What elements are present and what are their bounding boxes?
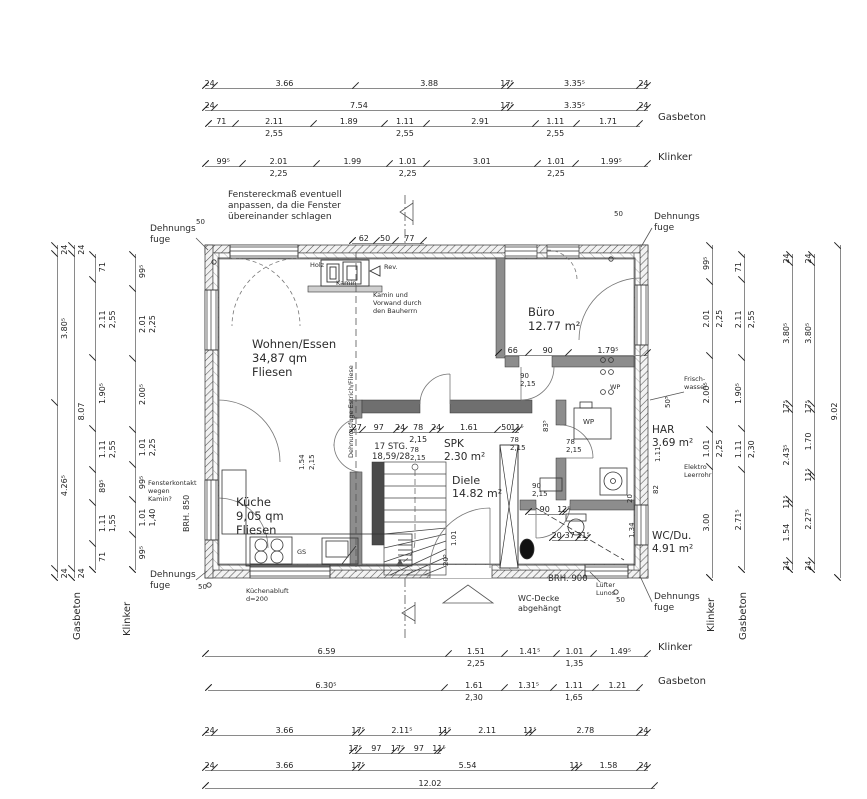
dim-col-right-gasbeton: 712.112,551.90⁵1.112,302.71⁵ (744, 254, 745, 570)
dim-value: 1.58 (600, 761, 618, 770)
room-spk: SPK2.30 m² (444, 438, 485, 463)
floor-plan-page: { "materials": {"gasbeton": "Gasbeton", … (0, 0, 867, 799)
dim-v111: 1.11 (654, 446, 662, 462)
material-bottom-gasbeton: Gasbeton (658, 676, 706, 688)
dim-subvalue: 2,55 (108, 310, 117, 328)
dim-col-left-2: 248.0724 (74, 245, 75, 578)
dim-value: 1.11 (396, 117, 414, 126)
dim-value: 1.70 (804, 433, 813, 451)
dim-row-top-1: 243.663.8817⁵3.35⁵24 (205, 88, 648, 89)
note-frischwasser: Frisch- wasser (684, 376, 707, 392)
dim-row-bottom-3: 243.6617⁵2.11⁵11⁵2.1111⁵2.7824 (205, 735, 648, 736)
dim-subvalue: 2,30 (747, 440, 756, 458)
dim-value: 3.88 (420, 79, 438, 88)
dim-value: 24 (638, 726, 648, 735)
note-fensterkontakt: Fensterkontakt wegen Kamin? (148, 480, 197, 503)
door-spk (420, 374, 450, 404)
dim-v101: 1.01 (450, 530, 458, 546)
material-bottom-klinker: Klinker (658, 642, 692, 654)
section-marker-top (400, 200, 413, 225)
dim-value: 3.80⁵ (782, 323, 791, 344)
label-brh900: BRH. 900 (548, 574, 588, 584)
dim-double-door-width: 1.54 (298, 454, 306, 470)
dim-value: 6.30⁵ (315, 681, 336, 690)
dim-value: 2.01 (270, 157, 288, 166)
room-har: HAR3.69 m² (652, 424, 693, 449)
dim-value: 3.35⁵ (564, 101, 585, 110)
dim-value: 1.90⁵ (98, 383, 107, 404)
dim-door-har-2: 78 2,15 (566, 438, 582, 455)
dim-value: 1.90⁵ (734, 383, 743, 404)
door-entry (430, 508, 490, 568)
dim-value: 77 (404, 234, 414, 243)
note-luefter: Lüfter Lunos (596, 582, 615, 598)
dim-value: 2.78 (576, 726, 594, 735)
dim-value: 3.01 (473, 157, 491, 166)
dim-value: 3.66 (276, 761, 294, 770)
dim-value: 11⁵ (432, 744, 445, 753)
dim-value: 2.27⁵ (804, 509, 813, 530)
dim-value: 1.99⁵ (601, 157, 622, 166)
dim-value: 97 (414, 744, 424, 753)
dim-value: 1.01 (566, 647, 584, 656)
dim-col-right-4: 243.80⁵17⁵1.7011⁵2.27⁵24 (814, 254, 815, 570)
dim-value: 3.66 (276, 726, 294, 735)
dehnungsfuge-bottom-right: Dehnungs fuge (654, 592, 700, 614)
dim-value: 1.51 (467, 647, 485, 656)
dim-value: 1.49⁵ (610, 647, 631, 656)
dim-subvalue: 2,25 (148, 438, 157, 456)
dim-value: 7.54 (350, 101, 368, 110)
window-swing-1 (232, 258, 300, 326)
dim-value: 71 (98, 262, 107, 272)
dim-row-buero: 66901.79⁵ (498, 355, 648, 356)
dim-col-right-3: 243.80⁵17⁵2.43⁵11⁵1.5424 (792, 254, 793, 570)
dehnungsfuge-top-right: Dehnungs fuge (654, 212, 700, 234)
dim-value: 12.02 (419, 779, 442, 788)
dim-subvalue: 2,55 (396, 129, 414, 138)
dim-value: 1.79⁵ (597, 346, 618, 355)
dim-row-stair-hall: 279724782,15241.615011⁵ (352, 432, 519, 433)
dim-value: 2.11⁵ (391, 726, 412, 735)
dim-value: 1.01 (702, 440, 711, 458)
dim-value: 21⁵ (576, 531, 589, 540)
dim-value: 2.11 (734, 310, 743, 328)
dim-value: 24 (77, 245, 86, 255)
dim-value: 90 (540, 505, 550, 514)
label-kamin: Kamin (336, 280, 356, 288)
dim-value: 1.21 (608, 681, 626, 690)
staircase (384, 462, 446, 575)
dim-col-left-klinker: 99⁵2.012,252.00⁵1.012,2599⁵1.011,4099⁵ (135, 254, 136, 570)
dim-value: 4.26⁵ (60, 475, 69, 496)
dim-row-shower: 203721⁵ (552, 540, 588, 541)
dim-subvalue: 2,15 (409, 435, 427, 444)
dim-value: 2.91 (471, 117, 489, 126)
fuge-dim-tl: 50 (196, 218, 205, 226)
room-buero: Büro12.77 m² (528, 306, 580, 334)
dim-subvalue: 2,25 (715, 440, 724, 458)
dim-value: 66 (508, 346, 518, 355)
note-wcdecke: WC-Decke abgehängt (518, 594, 561, 613)
dim-value: 1.31⁵ (518, 681, 539, 690)
dim-row-top-2: 247.5417⁵3.35⁵24 (205, 110, 648, 111)
section-marker-bottom (402, 602, 415, 624)
material-left-gasbeton: Gasbeton (72, 592, 83, 640)
dim-value: 24 (638, 101, 648, 110)
dim-value: 3.80⁵ (804, 323, 813, 344)
dim-value: 2.01 (702, 310, 711, 328)
dim-row-wc-door: 9012⁵ (528, 514, 566, 515)
dim-subvalue: 1,55 (108, 514, 117, 532)
dim-row-chimney: 625077 (352, 243, 424, 244)
dim-value: 78 (413, 423, 423, 432)
door-wohnen (218, 400, 280, 462)
dim-value: 71 (98, 552, 107, 562)
window-swing-2 (232, 258, 300, 326)
dim-row-bottom-gasbeton: 6.30⁵1.612,301.31⁵1.111,651.21 (208, 690, 640, 691)
dim-row-bottom-4: 17⁵9717⁵9711⁵ (352, 753, 441, 754)
toilet (520, 539, 534, 559)
dim-subvalue: 2,25 (547, 169, 565, 178)
dim-value: 24 (782, 560, 791, 570)
dim-value: 6.59 (318, 647, 336, 656)
dim-value: 71 (216, 117, 226, 126)
dim-value: 99⁵ (217, 157, 230, 166)
dim-value: 1.11 (565, 681, 583, 690)
dim-value: 12⁵ (557, 505, 570, 514)
note-elektro: Elektro Leerrohr (684, 464, 711, 480)
fuge-dim-br: 50 (616, 596, 625, 604)
dim-value: 9.02 (830, 403, 839, 421)
dim-value: 99⁵ (138, 476, 147, 489)
dim-v82: 82 (652, 485, 660, 494)
material-left-klinker: Klinker (122, 602, 133, 636)
label-stg: 17 STG. 18,59/28 (372, 442, 410, 462)
dim-value: 24 (804, 253, 813, 263)
dim-value: 71 (734, 262, 743, 272)
dim-value: 24 (804, 560, 813, 570)
dim-row-bottom-klinker: 6.591.512,251.41⁵1.011,351.49⁵ (205, 656, 648, 657)
dim-subvalue: 2,25 (148, 315, 157, 333)
dim-col-right-total: 9.02 (840, 245, 841, 578)
dim-col-left-1: 243.80⁵4.26⁵24 (57, 245, 58, 578)
dim-value: 11⁵ (804, 468, 813, 481)
dim-door-buero: 90 2,15 (520, 372, 536, 389)
dim-subvalue: 2,25 (399, 169, 417, 178)
dim-door-har-1: 78 2,15 (510, 436, 526, 453)
dim-value: 62 (359, 234, 369, 243)
dim-door-wc: 90 2,15 (532, 482, 548, 499)
dim-value: 24 (782, 253, 791, 263)
dim-subvalue: 2,25 (715, 310, 724, 328)
dim-value: 1.11 (98, 440, 107, 458)
dim-value: 3.80⁵ (60, 318, 69, 339)
dim-value: 1.11 (98, 514, 107, 532)
dim-col-left-gasbeton: 712.112,551.90⁵1.112,5589⁵1.111,5571 (95, 254, 96, 570)
dim-v20b: 20 (626, 494, 634, 503)
dim-double-door-height: 2,15 (308, 454, 316, 470)
note-kamin-vorwand: Kamin und Vorwand durch den Bauherrn (373, 292, 422, 315)
dim-subvalue: 2,55 (546, 129, 564, 138)
dim-value: 3.00 (702, 514, 711, 532)
dim-value: 99⁵ (702, 257, 711, 270)
fuge-dim-tr: 50 (614, 210, 623, 218)
dim-value: 2.71⁵ (734, 509, 743, 530)
dehnungsfuge-top-left: Dehnungs fuge (150, 224, 196, 246)
dim-v83: 83⁵ (542, 420, 550, 432)
room-wohnen: Wohnen/Essen34,87 qmFliesen (252, 338, 336, 379)
note-kuechenabluft: Küchenabluft d=200 (246, 588, 289, 604)
dim-value: 90 (543, 346, 553, 355)
dim-value: 99⁵ (138, 546, 147, 559)
dim-value: 2.11 (265, 117, 283, 126)
dim-value: 11⁵ (510, 423, 523, 432)
dim-subvalue: 2,55 (265, 129, 283, 138)
dim-value: 99⁵ (138, 265, 147, 278)
door-buero-entry (579, 278, 641, 340)
dim-value: 11⁵ (782, 495, 791, 508)
label-gs: GS (297, 549, 306, 557)
dehnungsfuge-bottom-left: Dehnungs fuge (150, 570, 196, 592)
dim-row-bottom-5: 243.6617⁵5.5411⁵1.5824 (205, 770, 648, 771)
dim-value: 24 (638, 79, 648, 88)
label-holz: Holz (310, 262, 324, 270)
dim-value: 24 (77, 568, 86, 578)
dim-subvalue: 1,65 (565, 693, 583, 702)
dim-value: 1.61 (460, 423, 478, 432)
dim-value: 97 (371, 744, 381, 753)
entry-door-opening (430, 565, 492, 578)
dim-value: 89⁵ (98, 479, 107, 492)
dim-value: 2.43⁵ (782, 444, 791, 465)
material-top-klinker: Klinker (658, 152, 692, 164)
dim-subvalue: 1,35 (566, 659, 584, 668)
dim-door-spk: 78 2,15 (410, 446, 426, 463)
dim-value: 1.01 (138, 438, 147, 456)
dim-value: 5.54 (459, 761, 477, 770)
dim-value: 1.01 (399, 157, 417, 166)
dim-value: 1.41⁵ (519, 647, 540, 656)
dim-value: 1.11 (546, 117, 564, 126)
dim-value: 1.01 (547, 157, 565, 166)
label-wp-1: WP (610, 384, 620, 392)
dim-value: 37 (565, 531, 575, 540)
dim-subvalue: 2,25 (270, 169, 288, 178)
dim-v50: 50⁵ (664, 396, 672, 408)
dim-value: 24 (638, 761, 648, 770)
dim-subvalue: 2,25 (467, 659, 485, 668)
material-right-gasbeton: Gasbeton (738, 592, 749, 640)
dim-row-bottom-total: 12.02 (205, 788, 655, 789)
note-fenster: Fenstereckmaß eventuell anpassen, da die… (228, 190, 342, 222)
dim-subvalue: 1,40 (148, 509, 157, 527)
dim-value: 17⁵ (804, 400, 813, 413)
dim-value: 1.11 (734, 440, 743, 458)
dim-v20a: 20⁵ (442, 554, 450, 566)
label-estrich-joint: Dehnungsfuge Estrich/Fliese (347, 365, 355, 458)
dim-value: 1.89 (340, 117, 358, 126)
dim-value: 2.11 (478, 726, 496, 735)
label-rev: Rev. (384, 264, 398, 272)
fuge-dim-bl: 50 (198, 583, 207, 591)
dim-row-top-gasbeton: 712.112,551.891.112,552.911.112,551.71 (208, 126, 640, 127)
dim-value: 50 (380, 234, 390, 243)
dim-value: 2.01 (138, 315, 147, 333)
dim-value: 1.99 (343, 157, 361, 166)
dim-value: 17⁵ (782, 400, 791, 413)
dim-value: 1.71 (599, 117, 617, 126)
dim-subvalue: 2,55 (747, 310, 756, 328)
dim-subvalue: 2,55 (108, 440, 117, 458)
dim-value: 1.54 (782, 524, 791, 542)
room-wc: WC/Du.4.91 m² (652, 530, 693, 555)
dim-value: 97 (374, 423, 384, 432)
dim-value: 3.66 (276, 79, 294, 88)
dim-v134: 1.34 (628, 522, 636, 538)
room-kueche: Küche9,05 qmFliesen (236, 496, 284, 537)
dim-value: 1.61 (465, 681, 483, 690)
dim-value: 8.07 (77, 403, 86, 421)
dim-subvalue: 2,30 (465, 693, 483, 702)
material-right-klinker: Klinker (706, 598, 717, 632)
entry-triangle (443, 585, 493, 603)
dim-value: 2.00⁵ (138, 384, 147, 405)
dim-row-top-klinker: 99⁵2.012,251.991.012,253.011.012,251.99⁵ (205, 166, 648, 167)
room-diele: Diele14.82 m² (452, 474, 502, 500)
material-top-gasbeton: Gasbeton (658, 112, 706, 124)
dim-value: 3.35⁵ (564, 79, 585, 88)
label-wp-2: WP (583, 418, 594, 426)
dim-value: 2.11 (98, 310, 107, 328)
dim-value: 1.01 (138, 509, 147, 527)
dim-col-right-klinker: 99⁵2.012,252.00⁵1.012,253.00 (712, 245, 713, 578)
installation-shaft (500, 445, 518, 568)
